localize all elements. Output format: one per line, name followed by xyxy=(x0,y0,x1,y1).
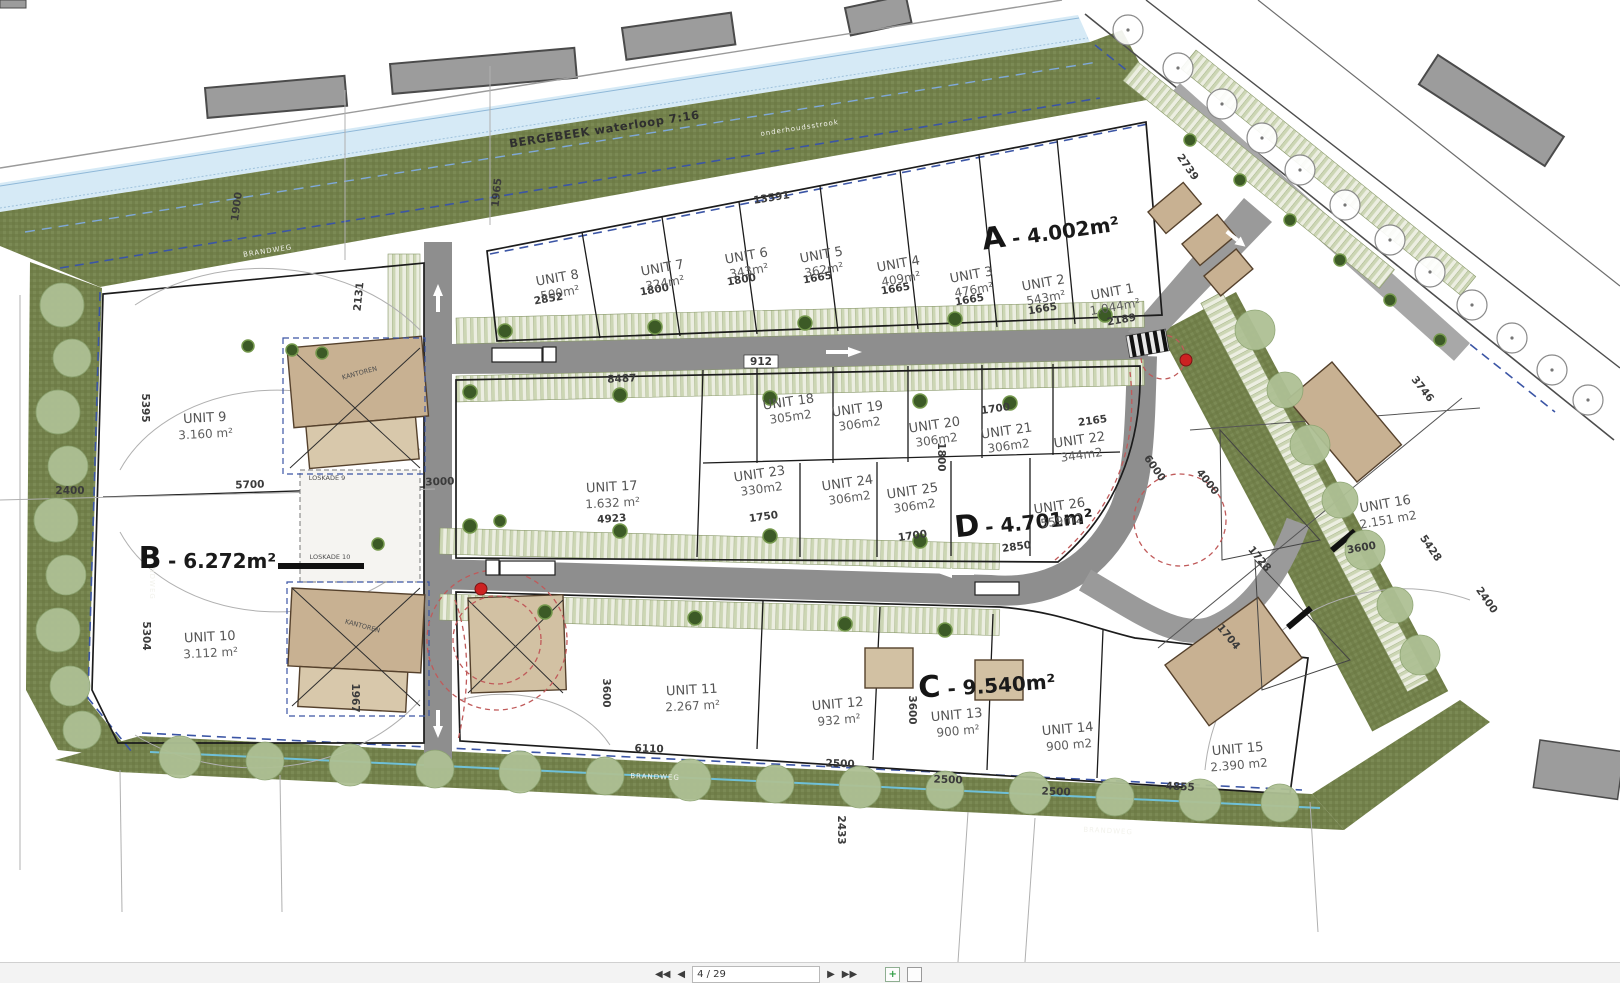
svg-text:LOSKADE 10: LOSKADE 10 xyxy=(310,553,351,561)
svg-text:1.632 m²: 1.632 m² xyxy=(585,495,641,512)
frame-icon[interactable] xyxy=(907,967,922,982)
svg-text:UNIT 11: UNIT 11 xyxy=(666,682,718,700)
svg-text:2500: 2500 xyxy=(825,757,855,770)
svg-text:UNIT 17: UNIT 17 xyxy=(586,479,638,497)
first-page-button[interactable]: ◀◀ xyxy=(655,968,670,982)
last-page-button[interactable]: ▶▶ xyxy=(842,968,857,982)
page-indicator-input[interactable] xyxy=(692,966,820,983)
next-page-button[interactable]: ▶ xyxy=(827,968,835,982)
prev-page-button[interactable]: ◀ xyxy=(677,968,685,982)
svg-text:6110: 6110 xyxy=(634,742,664,755)
svg-text:5304: 5304 xyxy=(140,621,152,650)
site-plan-drawing: 1900 1965 13591 2852 1800 1800 1665 1665… xyxy=(0,0,1620,962)
svg-text:2433: 2433 xyxy=(835,815,847,844)
svg-text:5395: 5395 xyxy=(139,393,151,422)
svg-text:2400: 2400 xyxy=(55,485,84,497)
svg-text:4855: 4855 xyxy=(1165,780,1195,794)
viewer-toolbar: ◀◀ ◀ ▶ ▶▶ + xyxy=(0,962,1620,983)
svg-text:1967: 1967 xyxy=(349,683,361,712)
svg-text:2.267 m²: 2.267 m² xyxy=(665,698,721,715)
svg-text:3600: 3600 xyxy=(600,678,612,707)
svg-text:4923: 4923 xyxy=(597,512,627,526)
svg-text:UNIT 10: UNIT 10 xyxy=(184,629,236,647)
svg-text:2500: 2500 xyxy=(933,773,963,786)
svg-text:3.160 m²: 3.160 m² xyxy=(178,426,234,443)
svg-text:UNIT 9: UNIT 9 xyxy=(183,410,227,427)
site-plan-viewer: 1900 1965 13591 2852 1800 1800 1665 1665… xyxy=(0,0,1620,983)
svg-text:2500: 2500 xyxy=(1041,785,1071,798)
svg-text:912: 912 xyxy=(750,356,772,368)
svg-text:8487: 8487 xyxy=(607,372,637,386)
svg-text:B: B xyxy=(139,541,162,576)
svg-text:D: D xyxy=(953,508,981,545)
svg-text:3600: 3600 xyxy=(906,695,918,724)
stop-marker-dot-2 xyxy=(1180,354,1192,366)
stop-marker-dot xyxy=(475,583,487,595)
export-icon[interactable]: + xyxy=(885,967,900,982)
svg-text:C: C xyxy=(917,669,941,705)
svg-text:LOSKADE 9: LOSKADE 9 xyxy=(309,474,346,482)
svg-text:3.112 m²: 3.112 m² xyxy=(183,645,239,662)
svg-text:5700: 5700 xyxy=(235,478,265,491)
svg-text:3000: 3000 xyxy=(425,475,455,488)
svg-text:- 6.272m²: - 6.272m² xyxy=(168,549,276,573)
